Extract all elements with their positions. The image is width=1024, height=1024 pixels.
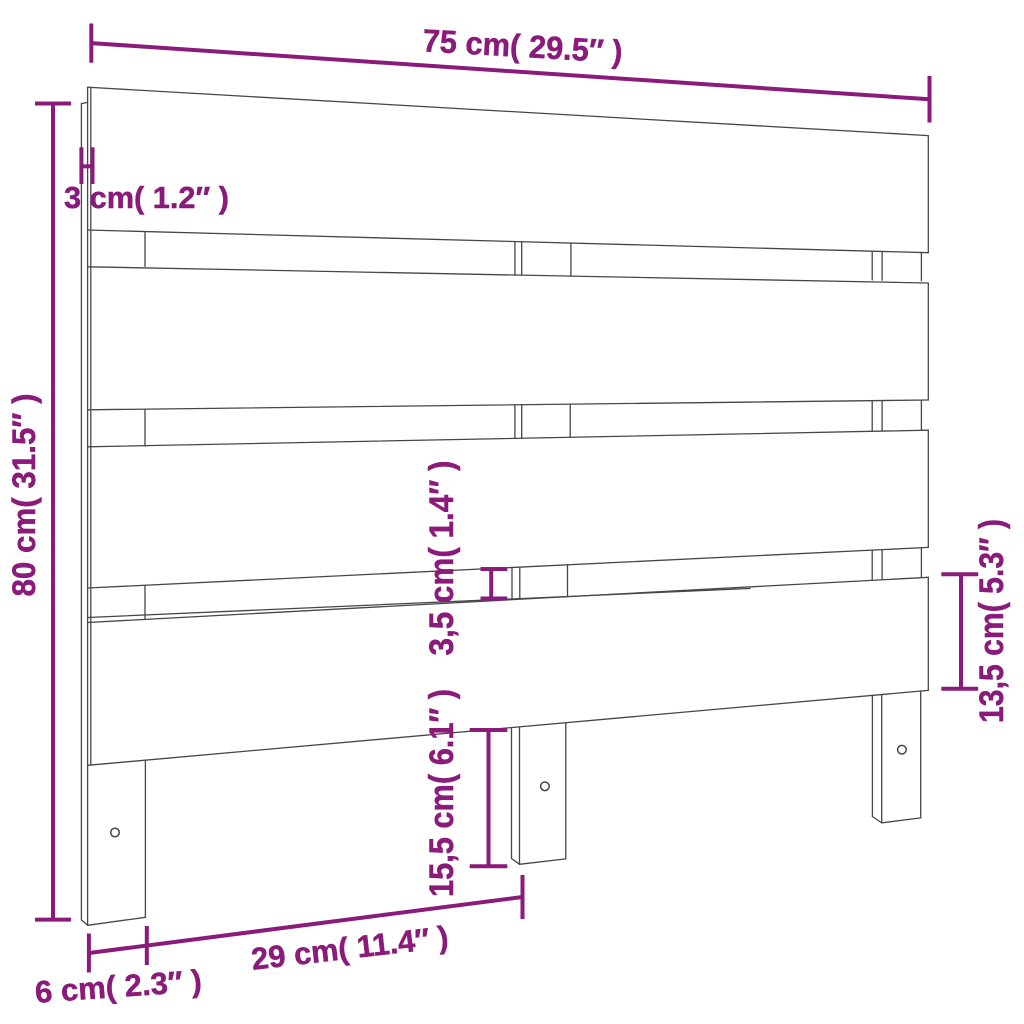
svg-text:80 cm( 31.5″ ): 80 cm( 31.5″ ) (6, 394, 42, 597)
svg-text:3 cm( 1.2″ ): 3 cm( 1.2″ ) (64, 180, 229, 215)
svg-text:3,5 cm( 1.4″ ): 3,5 cm( 1.4″ ) (423, 461, 461, 656)
svg-text:15,5 cm( 6.1″ ): 15,5 cm( 6.1″ ) (423, 689, 461, 897)
svg-text:13,5 cm( 5.3″ ): 13,5 cm( 5.3″ ) (973, 519, 1011, 723)
